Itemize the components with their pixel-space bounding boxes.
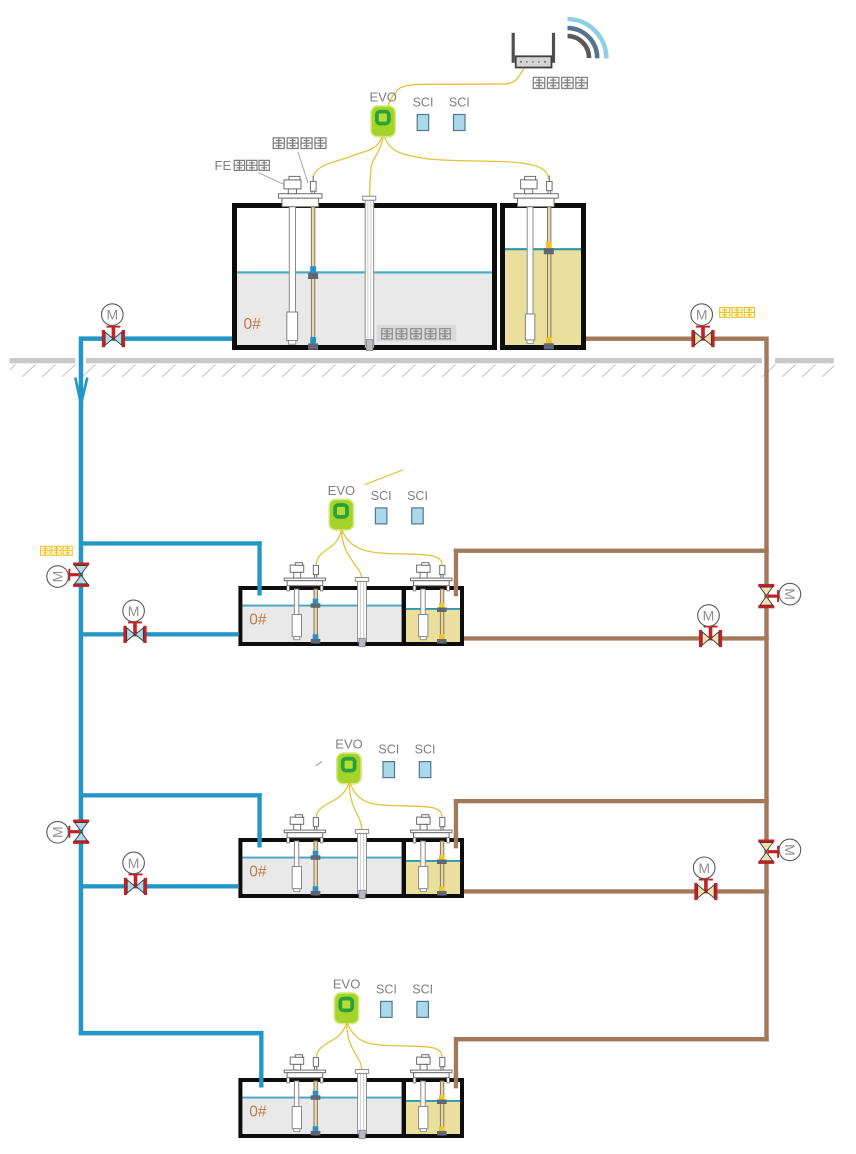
svg-text:FE: FE xyxy=(215,158,232,173)
svg-text:0#: 0# xyxy=(244,316,262,333)
